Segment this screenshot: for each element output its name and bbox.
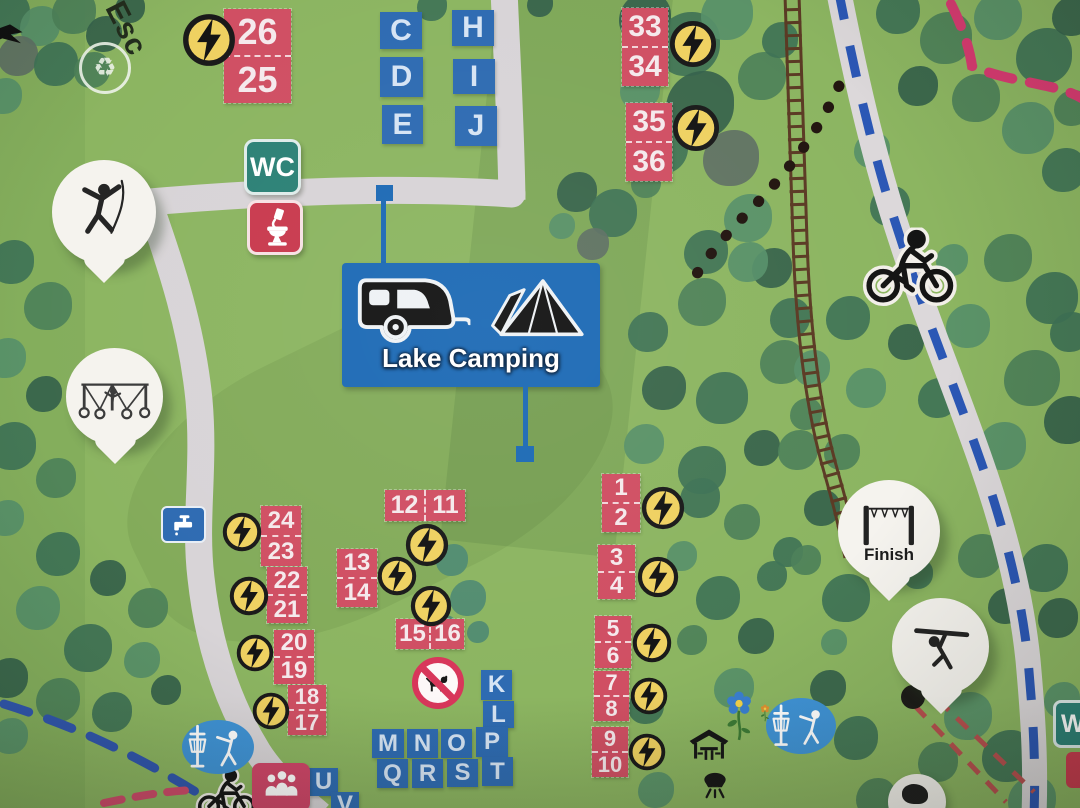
area-letter-T: T bbox=[482, 757, 513, 786]
area-letter-N: N bbox=[407, 729, 438, 758]
tree bbox=[724, 504, 760, 540]
tree bbox=[918, 378, 958, 418]
tree bbox=[677, 625, 707, 655]
pitch-marker-5-6: 56 bbox=[595, 616, 631, 668]
pitch-number: 34 bbox=[622, 46, 668, 86]
tree bbox=[778, 430, 818, 470]
campsite-map: 2625333435362423222120191817131412345678… bbox=[0, 0, 1080, 808]
area-letter-D: D bbox=[380, 57, 423, 97]
pitch-marker-18-17: 1817 bbox=[288, 685, 326, 735]
tree bbox=[854, 132, 890, 168]
tree bbox=[870, 186, 910, 226]
tree bbox=[738, 618, 774, 654]
area-letter-E: E bbox=[382, 105, 423, 144]
electric-hookup-icon bbox=[632, 623, 672, 663]
tree bbox=[151, 675, 181, 705]
bbq-icon bbox=[696, 764, 734, 806]
partial-glyph bbox=[902, 784, 928, 804]
tree bbox=[744, 430, 780, 466]
wc-sign-label: WC bbox=[250, 152, 295, 182]
wc-partial-label: W bbox=[1061, 710, 1080, 738]
electric-hookup-icon bbox=[669, 20, 717, 68]
footpath bbox=[138, 190, 512, 203]
electric-hookup-icon bbox=[630, 677, 668, 715]
sign-connector-square bbox=[376, 185, 393, 201]
tree bbox=[1004, 350, 1060, 406]
climbing-pin bbox=[52, 160, 156, 264]
tree bbox=[946, 304, 990, 348]
pitch-marker-24-23: 2423 bbox=[261, 506, 301, 566]
sign-icons bbox=[342, 263, 600, 345]
pitch-number: 9 bbox=[592, 727, 628, 751]
pitch-number: 20 bbox=[274, 630, 314, 656]
tree bbox=[1020, 544, 1068, 592]
tree bbox=[1038, 598, 1078, 638]
pitch-number: 11 bbox=[424, 490, 465, 521]
electric-hookup-icon bbox=[672, 104, 720, 152]
electric-hookup-icon bbox=[229, 576, 269, 616]
pitch-number: 19 bbox=[274, 656, 314, 684]
gathering-area-sign bbox=[252, 763, 310, 808]
tree bbox=[982, 730, 1034, 782]
finish-label: Finish bbox=[864, 545, 914, 565]
tree bbox=[821, 629, 847, 655]
pitch-number: 33 bbox=[622, 8, 668, 46]
area-letter-Q: Q bbox=[377, 759, 408, 788]
pitch-number: 6 bbox=[595, 641, 631, 668]
tree bbox=[628, 312, 668, 352]
caravan-icon bbox=[353, 271, 471, 345]
red-dashed-trail bbox=[104, 790, 194, 803]
tree bbox=[92, 692, 132, 732]
pitch-number: 3 bbox=[598, 545, 635, 571]
tree bbox=[978, 422, 1026, 470]
electric-hookup-icon bbox=[222, 512, 262, 552]
tree bbox=[0, 500, 24, 536]
tree bbox=[876, 0, 920, 34]
wc-sign-partial: W bbox=[1053, 700, 1080, 748]
pitch-number: 8 bbox=[594, 695, 629, 721]
area-letter-S: S bbox=[447, 759, 478, 787]
pitch-number: 12 bbox=[385, 490, 424, 521]
area-letter-O: O bbox=[441, 729, 472, 758]
tree bbox=[1044, 396, 1080, 444]
area-letter-M: M bbox=[372, 729, 404, 758]
tree bbox=[0, 240, 34, 284]
area-letter-I: I bbox=[453, 59, 495, 94]
tree bbox=[1002, 102, 1054, 154]
tree bbox=[1016, 28, 1072, 84]
tree bbox=[0, 78, 22, 114]
tree bbox=[824, 434, 860, 470]
electric-hookup-icon bbox=[252, 692, 290, 730]
pitch-number: 17 bbox=[288, 709, 326, 735]
disc-golf-icon bbox=[182, 720, 254, 774]
lake-camping-sign: Lake Camping bbox=[342, 263, 600, 387]
electric-hookup-icon bbox=[236, 634, 274, 672]
pitch-number: 13 bbox=[337, 549, 377, 577]
tree bbox=[549, 213, 575, 239]
tent-icon bbox=[481, 271, 589, 345]
footpath bbox=[504, 0, 512, 200]
climbing-icon bbox=[67, 175, 141, 249]
tree bbox=[974, 0, 1022, 40]
tree bbox=[638, 772, 674, 808]
tree bbox=[0, 658, 28, 698]
cyclist-icon bbox=[855, 226, 963, 308]
toilet-disposal-icon bbox=[250, 203, 300, 252]
electric-hookup-icon bbox=[628, 733, 666, 771]
tree bbox=[128, 588, 168, 628]
tree bbox=[790, 398, 822, 430]
pitch-marker-1-2: 12 bbox=[602, 474, 640, 532]
railway-rail bbox=[799, 0, 859, 558]
pitch-number: 36 bbox=[626, 141, 672, 181]
tree bbox=[1042, 148, 1080, 192]
lake-camping-label: Lake Camping bbox=[342, 343, 600, 374]
tree bbox=[467, 621, 489, 643]
pitch-number: 24 bbox=[261, 506, 301, 535]
tree bbox=[0, 718, 28, 754]
tree bbox=[888, 324, 924, 360]
tree bbox=[846, 368, 886, 408]
tree bbox=[624, 424, 664, 464]
pitch-marker-13-14: 1314 bbox=[337, 549, 377, 607]
tree bbox=[724, 194, 772, 242]
tree bbox=[738, 52, 786, 100]
area-letter-L: L bbox=[483, 701, 514, 728]
tree bbox=[684, 230, 728, 274]
pitch-marker-22-21: 2221 bbox=[267, 567, 307, 623]
tree bbox=[527, 0, 553, 17]
recycling-icon: ♻ bbox=[79, 42, 131, 94]
tree bbox=[696, 576, 740, 620]
pitch-number: 14 bbox=[337, 577, 377, 607]
tree bbox=[34, 42, 78, 86]
area-letter-H: H bbox=[452, 10, 494, 46]
pitch-number: 21 bbox=[267, 594, 307, 623]
red-sign-partial bbox=[1066, 752, 1080, 788]
tree bbox=[762, 22, 798, 58]
tree bbox=[898, 66, 938, 106]
tree bbox=[450, 580, 486, 616]
sign-connector-square bbox=[516, 446, 534, 462]
finish-gantry-icon bbox=[853, 501, 925, 549]
tree bbox=[24, 282, 72, 330]
pitch-number: 22 bbox=[267, 567, 307, 594]
tree bbox=[680, 478, 720, 518]
tree bbox=[642, 366, 686, 410]
tree bbox=[804, 490, 840, 526]
zipline-pin bbox=[892, 598, 989, 695]
pitch-marker-33-34: 3334 bbox=[622, 8, 668, 86]
tree bbox=[984, 234, 1032, 282]
pitch-number: 5 bbox=[595, 616, 631, 641]
no-dogs-sign bbox=[412, 657, 464, 709]
electric-hookup-icon bbox=[410, 585, 452, 627]
electric-hookup-icon bbox=[637, 556, 679, 598]
water-tap-icon bbox=[163, 508, 204, 541]
area-letter-V: V bbox=[331, 792, 359, 808]
electric-hookup-icon bbox=[182, 13, 236, 67]
tree bbox=[90, 560, 126, 596]
sign-connector-line bbox=[523, 387, 528, 447]
tree bbox=[36, 532, 80, 576]
tree bbox=[958, 534, 1002, 578]
pitch-number: 23 bbox=[261, 535, 301, 566]
pitch-marker-9-10: 910 bbox=[592, 727, 628, 777]
people-group-icon bbox=[252, 763, 310, 808]
chemical-toilet-disposal-sign bbox=[247, 200, 303, 255]
pitch-number: 18 bbox=[288, 685, 326, 709]
tree bbox=[0, 338, 26, 378]
tree bbox=[696, 372, 748, 424]
pitch-marker-20-19: 2019 bbox=[274, 630, 314, 684]
tree bbox=[988, 588, 1024, 624]
pitch-number: 35 bbox=[626, 103, 672, 141]
pitch-number: 4 bbox=[598, 571, 635, 599]
pitch-marker-12-11: 1211 bbox=[385, 490, 465, 521]
pitch-marker-7-8: 78 bbox=[594, 671, 629, 721]
pitch-marker-35-36: 3536 bbox=[626, 103, 672, 181]
tree bbox=[577, 228, 609, 260]
tree bbox=[36, 678, 80, 722]
orange-flower-icon bbox=[752, 700, 778, 726]
tree bbox=[16, 586, 60, 630]
tree bbox=[1054, 90, 1080, 126]
tree bbox=[124, 642, 160, 678]
tree bbox=[36, 458, 76, 498]
high-ropes-icon bbox=[73, 369, 157, 425]
high-ropes-pin bbox=[66, 348, 163, 445]
electric-hookup-icon bbox=[405, 523, 449, 567]
area-letter-J: J bbox=[455, 106, 497, 146]
pitch-number: 2 bbox=[602, 502, 640, 532]
finish-pin: Finish bbox=[838, 480, 940, 582]
tree bbox=[26, 376, 62, 412]
tree bbox=[0, 422, 36, 470]
drinking-water-sign bbox=[161, 506, 206, 543]
tree bbox=[728, 242, 768, 282]
pitch-marker-3-4: 34 bbox=[598, 545, 635, 599]
pitch-number: 7 bbox=[594, 671, 629, 695]
wc-sign: WC bbox=[244, 139, 301, 195]
tree bbox=[794, 350, 830, 386]
tree bbox=[64, 624, 112, 672]
tree bbox=[770, 298, 810, 338]
electric-hookup-icon bbox=[641, 486, 685, 530]
area-letter-P: P bbox=[476, 727, 508, 757]
pitch-number: 10 bbox=[592, 751, 628, 777]
area-letter-C: C bbox=[380, 12, 422, 49]
tree bbox=[791, 545, 821, 575]
area-letter-R: R bbox=[412, 759, 443, 788]
area-letter-K: K bbox=[481, 670, 512, 700]
sign-connector-line bbox=[381, 201, 386, 266]
tree bbox=[920, 12, 972, 64]
railway-rail bbox=[785, 0, 845, 558]
pitch-number: 1 bbox=[602, 474, 640, 502]
tree bbox=[1052, 0, 1080, 36]
tree bbox=[952, 74, 1000, 122]
tree bbox=[822, 574, 870, 622]
tree bbox=[678, 278, 726, 326]
zipline-icon bbox=[907, 613, 975, 681]
railway-track bbox=[792, 0, 852, 558]
disc-golf-area bbox=[182, 720, 254, 774]
tree bbox=[834, 716, 878, 760]
